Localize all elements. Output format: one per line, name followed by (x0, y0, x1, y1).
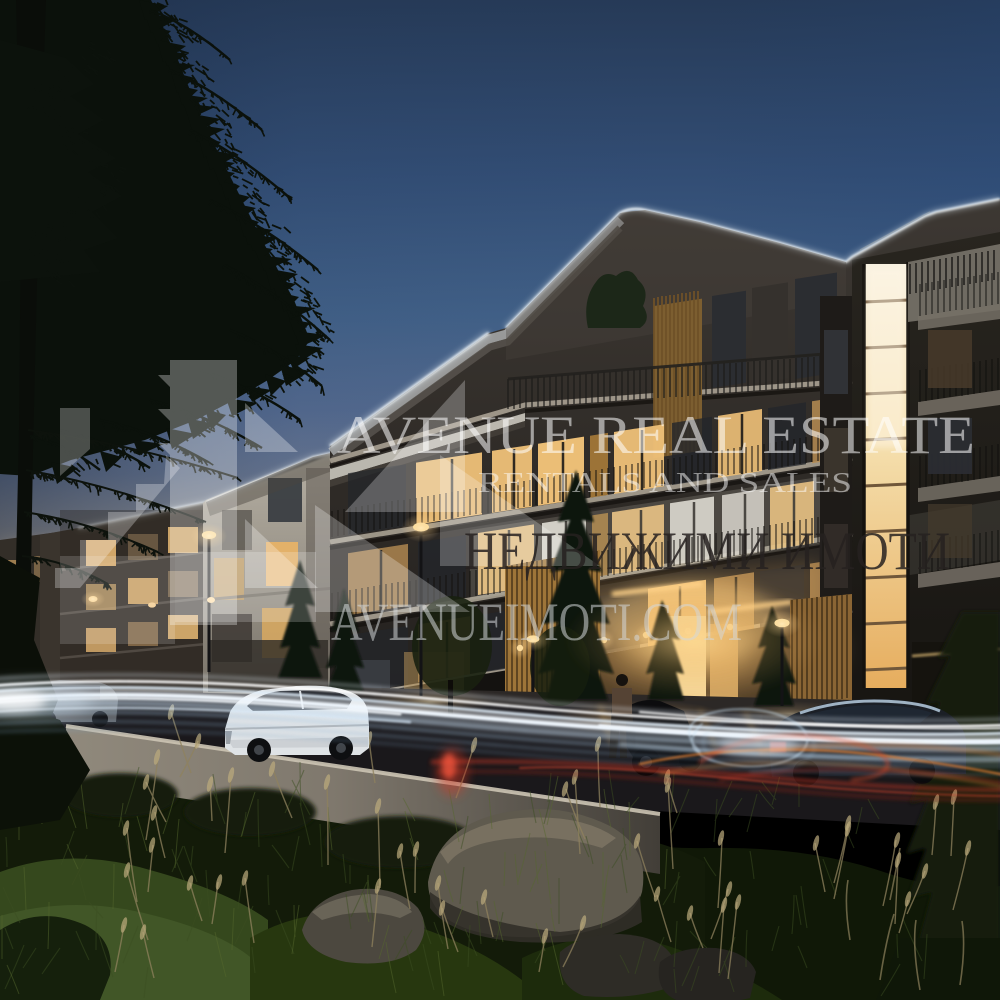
svg-text:AVENUEIMOTI.COM: AVENUEIMOTI.COM (331, 592, 742, 652)
svg-text:AVENUE REAL ESTATE: AVENUE REAL ESTATE (337, 405, 975, 465)
svg-text:НЕДВИЖИМИ ИМОТИ: НЕДВИЖИМИ ИМОТИ (464, 521, 950, 581)
svg-text:RENTALS AND SALES: RENTALS AND SALES (478, 467, 852, 499)
